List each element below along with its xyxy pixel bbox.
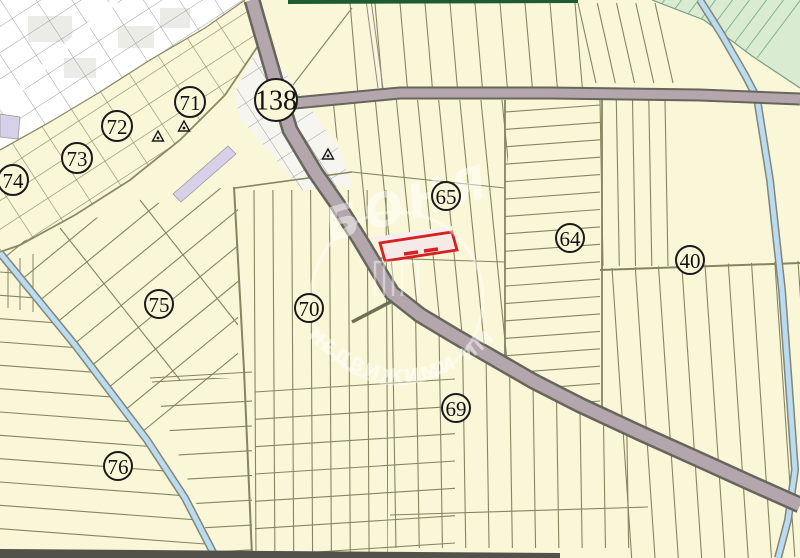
- svg-text:72: 72: [107, 115, 128, 139]
- lavender-parcel: [0, 114, 20, 139]
- zone-marker-40[interactable]: 40: [676, 246, 704, 274]
- zone-marker-138[interactable]: 138: [255, 79, 297, 121]
- svg-text:71: 71: [180, 91, 201, 115]
- svg-text:138: 138: [255, 86, 297, 117]
- map-viewport[interactable]: БОНЯ НЕДВИЖИМИ ИМОТИ 1387172737475767065…: [0, 0, 800, 558]
- zone-marker-64[interactable]: 64: [556, 224, 584, 252]
- svg-text:76: 76: [108, 455, 129, 479]
- zone-marker-75[interactable]: 75: [145, 290, 173, 318]
- svg-text:65: 65: [436, 185, 457, 209]
- svg-text:75: 75: [149, 293, 170, 317]
- zone-marker-73[interactable]: 73: [62, 143, 92, 173]
- zone-marker-65[interactable]: 65: [432, 182, 460, 210]
- svg-text:74: 74: [3, 169, 25, 193]
- svg-text:40: 40: [680, 249, 701, 273]
- svg-text:64: 64: [560, 227, 582, 251]
- zone-marker-69[interactable]: 69: [442, 394, 470, 422]
- zone-marker-76[interactable]: 76: [104, 452, 132, 480]
- zone-marker-72[interactable]: 72: [102, 111, 132, 141]
- cadastral-map[interactable]: БОНЯ НЕДВИЖИМИ ИМОТИ 1387172737475767065…: [0, 0, 800, 558]
- svg-text:69: 69: [446, 397, 467, 421]
- zone-marker-70[interactable]: 70: [295, 294, 323, 322]
- svg-text:73: 73: [67, 147, 88, 171]
- zone-marker-74[interactable]: 74: [0, 165, 28, 195]
- zone-marker-71[interactable]: 71: [175, 87, 205, 117]
- svg-text:70: 70: [299, 297, 320, 321]
